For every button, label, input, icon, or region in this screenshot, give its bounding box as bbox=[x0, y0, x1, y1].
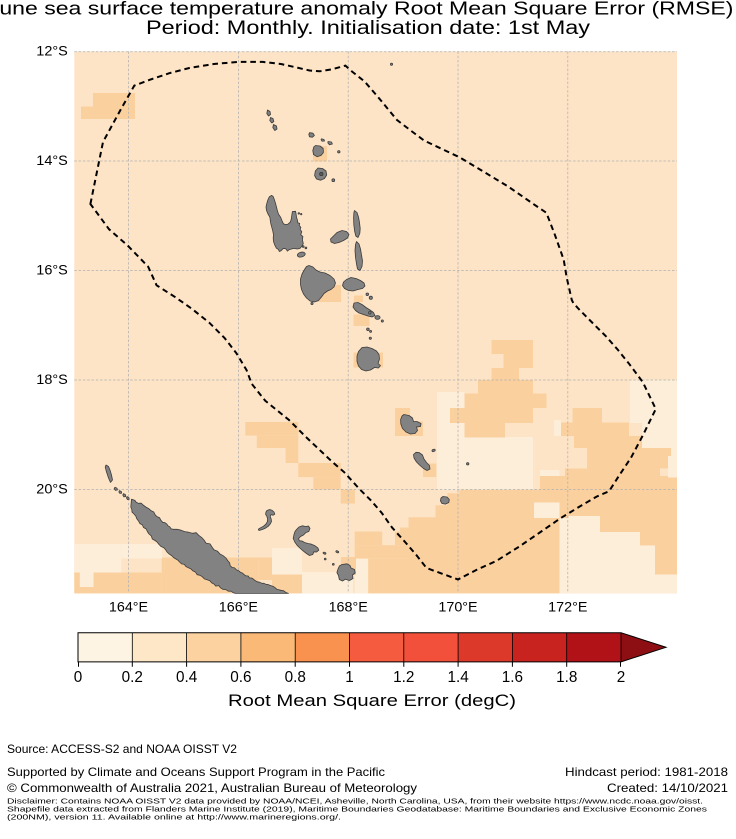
svg-text:1: 1 bbox=[345, 669, 354, 686]
svg-text:0: 0 bbox=[74, 669, 83, 686]
svg-text:172°E: 172°E bbox=[548, 600, 587, 615]
svg-text:1.6: 1.6 bbox=[502, 669, 523, 686]
svg-text:12°S: 12°S bbox=[36, 44, 68, 59]
svg-text:0.8: 0.8 bbox=[285, 669, 306, 686]
svg-text:1.4: 1.4 bbox=[447, 669, 469, 686]
svg-text:16°S: 16°S bbox=[36, 263, 68, 278]
svg-text:1.2: 1.2 bbox=[393, 669, 414, 686]
svg-text:Supported by Climate and Ocean: Supported by Climate and Oceans Support … bbox=[7, 766, 385, 779]
svg-text:Root Mean Square Error (degC): Root Mean Square Error (degC) bbox=[228, 692, 516, 710]
svg-text:1.8: 1.8 bbox=[556, 669, 577, 686]
svg-text:164°E: 164°E bbox=[109, 600, 148, 615]
svg-text:18°S: 18°S bbox=[36, 372, 68, 387]
svg-text:166°E: 166°E bbox=[219, 600, 258, 615]
svg-text:Period: Monthly. Initialisatio: Period: Monthly. Initialisation date: 1s… bbox=[146, 18, 590, 39]
svg-text:20°S: 20°S bbox=[36, 482, 68, 497]
svg-text:(200NM), version 11. Available: (200NM), version 11. Available online at… bbox=[7, 813, 341, 822]
svg-text:170°E: 170°E bbox=[438, 600, 477, 615]
svg-text:0.4: 0.4 bbox=[176, 669, 198, 686]
svg-text:June sea surface temperature a: June sea surface temperature anomaly Roo… bbox=[0, 0, 733, 18]
svg-text:Source: ACCESS-S2 and NOAA OIS: Source: ACCESS-S2 and NOAA OISST V2 bbox=[7, 743, 237, 756]
svg-text:0.2: 0.2 bbox=[122, 669, 143, 686]
svg-text:168°E: 168°E bbox=[329, 600, 368, 615]
svg-text:2: 2 bbox=[617, 669, 626, 686]
svg-text:0.6: 0.6 bbox=[230, 669, 251, 686]
svg-text:Created: 14/10/2021: Created: 14/10/2021 bbox=[607, 782, 728, 795]
svg-text:14°S: 14°S bbox=[36, 153, 68, 168]
svg-text:© Commonwealth of Australia 20: © Commonwealth of Australia 2021, Austra… bbox=[7, 782, 417, 795]
svg-text:Hindcast period: 1981-2018: Hindcast period: 1981-2018 bbox=[565, 766, 728, 779]
